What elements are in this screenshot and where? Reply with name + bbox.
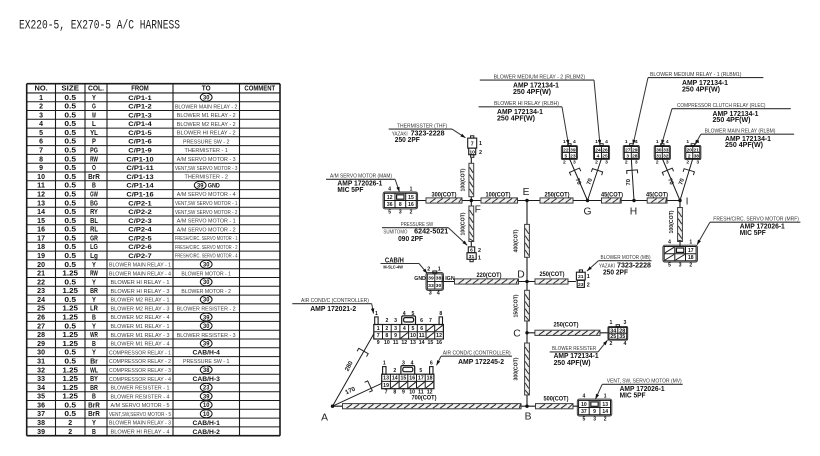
svg-text:25: 25 [610, 334, 616, 340]
svg-text:38: 38 [694, 153, 700, 159]
svg-text:WL: WL [90, 367, 98, 374]
svg-text:NO.: NO. [35, 86, 48, 93]
svg-text:0.5: 0.5 [64, 209, 76, 216]
svg-text:1: 1 [410, 187, 413, 193]
svg-text:6: 6 [430, 361, 433, 367]
svg-text:C/P2-6: C/P2-6 [128, 244, 152, 251]
svg-text:13: 13 [383, 376, 389, 382]
svg-text:C/P2-1: C/P2-1 [128, 200, 152, 207]
svg-text:2: 2 [563, 160, 566, 166]
svg-text:39: 39 [428, 276, 434, 282]
svg-text:B: B [92, 183, 96, 190]
svg-text:30: 30 [436, 283, 442, 289]
svg-text:GND: GND [208, 183, 220, 190]
svg-text:FROM: FROM [131, 86, 149, 93]
svg-text:FRESH/CIRC. SERVO MOTOR - 4: FRESH/CIRC. SERVO MOTOR - 4 [175, 254, 238, 260]
svg-text:C/P1-9: C/P1-9 [128, 148, 152, 155]
svg-text:BLOWER RESISTER - 1: BLOWER RESISTER - 1 [111, 386, 170, 392]
svg-text:23: 23 [203, 385, 210, 392]
svg-text:6242-5021: 6242-5021 [414, 229, 448, 236]
svg-text:21: 21 [37, 271, 45, 278]
svg-text:0.5: 0.5 [64, 297, 76, 304]
svg-text:14: 14 [602, 409, 608, 415]
svg-text:0.5: 0.5 [64, 279, 76, 286]
svg-text:GND: GND [414, 276, 426, 282]
svg-text:2: 2 [587, 282, 590, 288]
svg-text:3: 3 [696, 160, 699, 166]
svg-text:BG: BG [90, 200, 98, 207]
svg-text:23: 23 [578, 282, 584, 288]
svg-text:FRESH/CIRC. SERVO MOTOR (MRF): FRESH/CIRC. SERVO MOTOR (MRF) [713, 216, 799, 222]
svg-text:20: 20 [687, 147, 693, 153]
svg-text:100(COT): 100(COT) [669, 210, 675, 233]
svg-text:30: 30 [203, 323, 210, 330]
svg-text:0.5: 0.5 [64, 148, 76, 155]
svg-text:F: F [475, 205, 481, 216]
svg-text:0.5: 0.5 [64, 253, 76, 260]
svg-text:1.25: 1.25 [62, 394, 78, 401]
svg-text:250 2PF: 250 2PF [603, 269, 629, 276]
svg-text:IGN: IGN [445, 276, 455, 282]
svg-text:BY: BY [90, 376, 98, 383]
svg-text:9: 9 [39, 165, 43, 172]
svg-text:BLOWER M1 RELAY - 4: BLOWER M1 RELAY - 4 [111, 342, 170, 348]
svg-text:5: 5 [411, 311, 414, 317]
svg-text:BrR: BrR [88, 402, 100, 409]
svg-text:C: C [513, 329, 521, 340]
svg-text:CAB/H-4: CAB/H-4 [193, 350, 221, 357]
svg-text:11: 11 [418, 390, 424, 396]
svg-text:3: 3 [626, 153, 629, 159]
svg-text:39: 39 [203, 341, 210, 348]
svg-text:12: 12 [387, 195, 393, 201]
svg-text:1: 1 [625, 139, 628, 145]
svg-text:1: 1 [478, 256, 481, 262]
svg-text:1.25: 1.25 [62, 385, 78, 392]
svg-text:RY: RY [90, 209, 98, 216]
svg-text:A/M SERVO MOTOR - 3: A/M SERVO MOTOR - 3 [177, 157, 236, 163]
svg-text:250 4PF(W): 250 4PF(W) [682, 87, 720, 94]
svg-text:BrR: BrR [88, 174, 100, 181]
svg-text:33: 33 [428, 283, 434, 289]
svg-text:30: 30 [203, 95, 210, 102]
svg-text:24: 24 [595, 147, 601, 153]
svg-text:5: 5 [668, 263, 671, 269]
svg-text:WR: WR [90, 332, 98, 339]
svg-text:8: 8 [439, 311, 442, 317]
svg-text:15: 15 [37, 218, 45, 225]
svg-text:RW: RW [90, 271, 98, 278]
svg-text:32: 32 [663, 153, 669, 159]
svg-text:RL: RL [90, 227, 98, 234]
svg-text:COMMENT: COMMENT [244, 86, 275, 93]
svg-text:0.5: 0.5 [64, 139, 76, 146]
svg-text:0.5: 0.5 [64, 411, 76, 418]
svg-text:33: 33 [663, 147, 669, 153]
svg-text:12: 12 [436, 333, 442, 339]
svg-text:1: 1 [563, 139, 566, 145]
svg-text:Y: Y [92, 279, 96, 286]
svg-text:30: 30 [37, 350, 45, 357]
svg-text:C/P1-4: C/P1-4 [128, 121, 152, 128]
svg-text:A/M SERVO MOTOR - 1: A/M SERVO MOTOR - 1 [177, 219, 236, 225]
svg-text:GR: GR [90, 235, 98, 242]
svg-text:A/M SERVO MOTOR - 5: A/M SERVO MOTOR - 5 [111, 403, 170, 409]
svg-text:11: 11 [419, 333, 425, 339]
svg-text:COMPRESSOR RELAY - 1: COMPRESSOR RELAY - 1 [109, 350, 171, 356]
svg-text:P: P [92, 139, 96, 146]
svg-text:39: 39 [197, 182, 204, 189]
svg-text:2: 2 [656, 160, 659, 166]
svg-text:BR: BR [90, 288, 98, 295]
svg-text:FRESH/CIRC. SERVO MOTOR - 2: FRESH/CIRC. SERVO MOTOR - 2 [175, 245, 238, 251]
svg-text:2: 2 [385, 318, 388, 324]
svg-text:4: 4 [403, 311, 406, 317]
svg-text:L: L [92, 121, 97, 128]
svg-text:0.5: 0.5 [64, 244, 76, 251]
svg-text:AIR COND/C (CONTROLLER): AIR COND/C (CONTROLLER) [301, 298, 369, 304]
svg-text:36: 36 [37, 402, 45, 409]
svg-text:BLOWER RESISTER - 3: BLOWER RESISTER - 3 [177, 333, 236, 339]
svg-text:EX220-5, EX270-5 A/C HARNESS: EX220-5, EX270-5 A/C HARNESS [19, 19, 180, 33]
svg-text:8: 8 [393, 390, 396, 396]
svg-text:PRESSURE SW - 1: PRESSURE SW - 1 [183, 359, 230, 365]
svg-text:2: 2 [478, 248, 481, 254]
svg-text:BLOWER M1 RELAY - 1: BLOWER M1 RELAY - 1 [111, 324, 170, 330]
svg-text:0.5: 0.5 [64, 227, 76, 234]
svg-text:COMPRESSOR CLUTCH RELAY (RLEC): COMPRESSOR CLUTCH RELAY (RLEC) [677, 103, 766, 109]
svg-text:11: 11 [393, 340, 399, 346]
svg-text:15: 15 [408, 195, 414, 201]
svg-text:39: 39 [570, 147, 576, 153]
svg-text:2: 2 [385, 326, 388, 332]
svg-text:700(COT): 700(COT) [412, 394, 437, 401]
svg-text:MIC 5PF: MIC 5PF [740, 230, 767, 237]
svg-text:COL.: COL. [88, 86, 104, 93]
svg-text:16: 16 [436, 340, 442, 346]
svg-text:0.5: 0.5 [64, 121, 76, 128]
svg-text:15: 15 [428, 340, 434, 346]
svg-text:BLOWER MOTOR (MB): BLOWER MOTOR (MB) [601, 255, 651, 261]
svg-text:39: 39 [203, 393, 210, 400]
svg-text:1.25: 1.25 [62, 315, 78, 322]
svg-text:45(COT): 45(COT) [646, 191, 668, 198]
svg-text:7: 7 [429, 318, 432, 324]
svg-text:A/M SERVO MOTOR - 2: A/M SERVO MOTOR - 2 [177, 227, 236, 233]
svg-text:31: 31 [656, 153, 662, 159]
svg-text:9: 9 [402, 390, 405, 396]
svg-text:10: 10 [203, 411, 210, 418]
svg-text:4: 4 [597, 153, 600, 159]
svg-text:35: 35 [619, 334, 625, 340]
svg-text:PRESSURE SW: PRESSURE SW [401, 222, 434, 228]
svg-text:19: 19 [383, 383, 389, 389]
svg-text:17: 17 [688, 248, 694, 254]
svg-text:2: 2 [625, 160, 628, 166]
svg-text:20: 20 [37, 262, 45, 269]
svg-text:C/P1-13: C/P1-13 [126, 174, 154, 181]
svg-text:RW: RW [90, 156, 98, 163]
svg-text:BLOWER M2 RELAY - 2: BLOWER M2 RELAY - 2 [177, 122, 236, 128]
svg-text:BLOWER MOTOR - 1: BLOWER MOTOR - 1 [181, 271, 231, 277]
svg-text:0.5: 0.5 [64, 174, 76, 181]
svg-text:26: 26 [37, 315, 45, 322]
svg-text:COMPRESSOR RELAY - 3: COMPRESSOR RELAY - 3 [109, 368, 171, 374]
svg-text:0.5: 0.5 [64, 192, 76, 199]
svg-text:CAB/H: CAB/H [385, 255, 404, 264]
svg-text:23: 23 [37, 288, 45, 295]
svg-text:3: 3 [593, 417, 596, 423]
svg-text:2: 2 [689, 263, 692, 269]
svg-text:VENT, SW, SERVO MOTOR (MV): VENT, SW, SERVO MOTOR (MV) [607, 379, 682, 385]
svg-text:250 4PF(W): 250 4PF(W) [554, 360, 591, 367]
svg-text:C/P1-11: C/P1-11 [126, 165, 154, 172]
svg-text:THERMISTER - 2: THERMISTER - 2 [185, 175, 228, 181]
svg-text:3: 3 [394, 326, 397, 332]
svg-text:14: 14 [392, 376, 398, 382]
svg-text:1: 1 [375, 311, 378, 317]
svg-text:100(COT): 100(COT) [486, 191, 511, 198]
svg-text:38: 38 [436, 276, 442, 282]
svg-text:31: 31 [37, 359, 45, 366]
svg-text:BLOWER RESISTER - 4: BLOWER RESISTER - 4 [111, 394, 170, 400]
svg-text:0.5: 0.5 [64, 350, 76, 357]
svg-text:VENT,SW SERVO MOTOR - 3: VENT,SW SERVO MOTOR - 3 [175, 166, 238, 172]
svg-text:BLOWER RESISTER - 2: BLOWER RESISTER - 2 [177, 306, 236, 312]
svg-text:12: 12 [401, 340, 407, 346]
svg-text:BLOWER MEDIUM RELAY - 1 (RLBM1: BLOWER MEDIUM RELAY - 1 (RLBM1) [650, 72, 742, 78]
svg-text:7: 7 [39, 148, 43, 155]
svg-text:C/P1-5: C/P1-5 [128, 130, 152, 137]
svg-text:45(COT): 45(COT) [601, 191, 623, 198]
svg-text:1.25: 1.25 [62, 271, 78, 278]
svg-text:500(COT): 500(COT) [544, 396, 569, 403]
svg-text:3: 3 [573, 160, 576, 166]
svg-text:28: 28 [632, 153, 638, 159]
svg-text:MIC 5PF: MIC 5PF [337, 187, 364, 194]
svg-text:BLOWER HI RELAY - 1: BLOWER HI RELAY - 1 [111, 280, 170, 286]
svg-text:VENT,SW SERVO MOTOR - 2: VENT,SW SERVO MOTOR - 2 [175, 210, 238, 216]
svg-text:38: 38 [203, 367, 210, 374]
svg-text:2: 2 [39, 104, 43, 111]
svg-text:2: 2 [68, 420, 72, 427]
svg-text:BR: BR [90, 385, 98, 392]
svg-text:5: 5 [39, 130, 43, 137]
svg-text:BLOWER MOTOR - 2: BLOWER MOTOR - 2 [181, 289, 231, 295]
svg-text:19: 19 [37, 253, 45, 260]
svg-text:16: 16 [37, 227, 45, 234]
svg-text:33: 33 [37, 376, 45, 383]
svg-text:0.5: 0.5 [64, 200, 76, 207]
svg-text:3: 3 [429, 291, 432, 297]
svg-text:BLOWER HI RELAY - 2: BLOWER HI RELAY - 2 [177, 131, 236, 137]
svg-text:9: 9 [593, 409, 596, 415]
svg-text:BLOWER RESISTER: BLOWER RESISTER [552, 346, 596, 352]
svg-text:1: 1 [689, 240, 692, 246]
svg-text:6: 6 [39, 139, 43, 146]
svg-text:MIC 5PF: MIC 5PF [620, 393, 647, 400]
svg-text:21: 21 [694, 147, 700, 153]
svg-text:3: 3 [394, 318, 397, 324]
svg-text:250(COT): 250(COT) [545, 191, 570, 198]
svg-text:18: 18 [427, 376, 433, 382]
svg-text:D: D [517, 270, 524, 281]
svg-text:25: 25 [37, 306, 45, 313]
svg-text:C/P1-1: C/P1-1 [128, 95, 152, 102]
svg-text:4: 4 [388, 187, 391, 193]
svg-text:38: 38 [37, 420, 45, 427]
svg-text:1: 1 [686, 139, 689, 145]
svg-text:12: 12 [427, 390, 433, 396]
svg-text:I: I [686, 197, 689, 208]
svg-text:LG: LG [90, 244, 98, 251]
svg-text:O: O [92, 165, 96, 172]
svg-text:BLOWER HI RELAY (RLBH): BLOWER HI RELAY (RLBH) [494, 101, 559, 107]
svg-text:3: 3 [39, 112, 43, 119]
svg-text:0.5: 0.5 [64, 156, 76, 163]
svg-text:3: 3 [402, 361, 405, 367]
svg-text:39: 39 [37, 429, 45, 436]
svg-text:W: W [92, 112, 96, 119]
svg-text:27: 27 [625, 147, 631, 153]
svg-text:6: 6 [420, 326, 423, 332]
svg-text:BL: BL [90, 218, 98, 225]
svg-text:4: 4 [411, 361, 414, 367]
svg-text:39: 39 [203, 314, 210, 321]
svg-text:0.5: 0.5 [64, 402, 76, 409]
svg-text:LR: LR [90, 306, 98, 313]
svg-text:10: 10 [410, 333, 416, 339]
svg-text:A/M SERVO MOTOR (MAM): A/M SERVO MOTOR (MAM) [330, 174, 392, 180]
svg-text:5: 5 [565, 153, 568, 159]
svg-text:0.5: 0.5 [64, 262, 76, 269]
svg-text:14: 14 [37, 209, 45, 216]
svg-text:4: 4 [635, 139, 638, 145]
svg-text:B: B [92, 341, 96, 348]
svg-text:9: 9 [377, 340, 380, 346]
svg-text:TO: TO [202, 86, 211, 93]
svg-text:3: 3 [623, 320, 626, 326]
svg-text:13: 13 [37, 200, 45, 207]
svg-text:4: 4 [623, 341, 626, 347]
svg-text:2: 2 [688, 153, 691, 159]
svg-text:090 2PF: 090 2PF [398, 236, 424, 243]
svg-text:PG: PG [90, 148, 98, 155]
svg-text:G: G [583, 207, 591, 218]
svg-text:5: 5 [388, 209, 391, 215]
svg-text:100(COT): 100(COT) [460, 212, 466, 235]
svg-text:17: 17 [418, 376, 424, 382]
svg-text:THERMISTER - 1: THERMISTER - 1 [185, 148, 228, 154]
svg-text:THERMISSTER (THF): THERMISSTER (THF) [397, 123, 447, 129]
svg-text:CAB/H-2: CAB/H-2 [193, 429, 221, 436]
svg-text:Y: Y [92, 262, 96, 269]
svg-text:Y: Y [92, 350, 96, 357]
svg-text:1.25: 1.25 [62, 332, 78, 339]
svg-text:15: 15 [401, 376, 407, 382]
svg-text:0.5: 0.5 [64, 218, 76, 225]
svg-text:14: 14 [419, 340, 425, 346]
svg-text:250 4PF(W): 250 4PF(W) [713, 117, 751, 124]
svg-text:0.5: 0.5 [64, 130, 76, 137]
svg-text:34: 34 [37, 385, 45, 392]
svg-text:35: 35 [37, 394, 45, 401]
svg-text:3: 3 [605, 160, 608, 166]
svg-text:C/P2-5: C/P2-5 [128, 235, 152, 242]
svg-text:300(COT): 300(COT) [514, 357, 520, 380]
svg-text:BLOWER M1 RELAY - 3: BLOWER M1 RELAY - 3 [111, 333, 170, 339]
svg-text:3: 3 [679, 263, 682, 269]
svg-text:COMPRESSOR RELAY - 4: COMPRESSOR RELAY - 4 [109, 377, 171, 383]
svg-text:G: G [92, 104, 96, 111]
svg-text:220(COT): 220(COT) [477, 272, 502, 279]
svg-text:1: 1 [438, 267, 441, 273]
svg-text:22: 22 [563, 147, 569, 153]
svg-text:8: 8 [39, 156, 43, 163]
svg-text:37: 37 [581, 409, 587, 415]
svg-text:BLOWER M2 RELAY - 3: BLOWER M2 RELAY - 3 [111, 306, 170, 312]
svg-text:C/P2-2: C/P2-2 [128, 209, 152, 216]
svg-text:BLOWER MEDIUM RELAY - 2 (RLBM2: BLOWER MEDIUM RELAY - 2 (RLBM2) [494, 74, 586, 80]
svg-text:PRESSURE SW - 2: PRESSURE SW - 2 [183, 139, 230, 145]
svg-text:250(COT): 250(COT) [540, 271, 565, 278]
svg-text:1: 1 [383, 361, 386, 367]
svg-text:13: 13 [602, 402, 608, 408]
svg-text:6: 6 [420, 318, 423, 324]
svg-text:7: 7 [377, 333, 380, 339]
svg-text:30: 30 [203, 297, 210, 304]
svg-text:5: 5 [419, 368, 422, 374]
svg-text:1: 1 [604, 394, 607, 400]
svg-text:A/M SERVO MOTOR - 4: A/M SERVO MOTOR - 4 [177, 192, 236, 198]
svg-text:0.5: 0.5 [64, 165, 76, 172]
svg-text:4: 4 [583, 394, 586, 400]
svg-text:1.25: 1.25 [62, 306, 78, 313]
svg-text:150(COT): 150(COT) [514, 294, 520, 317]
svg-text:0.5: 0.5 [64, 235, 76, 242]
svg-text:250 4PF(W): 250 4PF(W) [497, 116, 535, 123]
svg-text:3: 3 [399, 209, 402, 215]
svg-text:Lg: Lg [90, 253, 98, 260]
svg-text:29: 29 [632, 147, 638, 153]
svg-text:30: 30 [203, 279, 210, 286]
svg-text:2: 2 [595, 160, 598, 166]
svg-text:5: 5 [412, 326, 415, 332]
svg-text:YL: YL [90, 130, 98, 137]
svg-text:32: 32 [37, 367, 45, 374]
svg-text:18: 18 [688, 255, 694, 261]
svg-text:Br: Br [90, 359, 98, 366]
svg-text:27: 27 [37, 323, 45, 330]
svg-text:SUMITOMO: SUMITOMO [383, 230, 407, 236]
svg-text:70: 70 [626, 179, 632, 186]
svg-text:250 2PF: 250 2PF [395, 137, 421, 144]
svg-text:16: 16 [408, 202, 414, 208]
svg-text:BLOWER M1 RELAY - 2: BLOWER M1 RELAY - 2 [177, 113, 236, 119]
svg-text:SIZE: SIZE [61, 86, 79, 93]
svg-text:28: 28 [37, 332, 45, 339]
svg-text:16: 16 [409, 376, 415, 382]
svg-text:4: 4 [573, 139, 576, 145]
svg-text:1: 1 [479, 141, 482, 147]
svg-text:10: 10 [384, 340, 390, 346]
svg-text:C/P1-6: C/P1-6 [128, 139, 152, 146]
svg-text:100(COT): 100(COT) [460, 168, 466, 191]
svg-text:2: 2 [479, 150, 482, 156]
svg-text:4: 4 [605, 139, 608, 145]
svg-text:1: 1 [609, 320, 612, 326]
svg-text:B: B [92, 315, 96, 322]
